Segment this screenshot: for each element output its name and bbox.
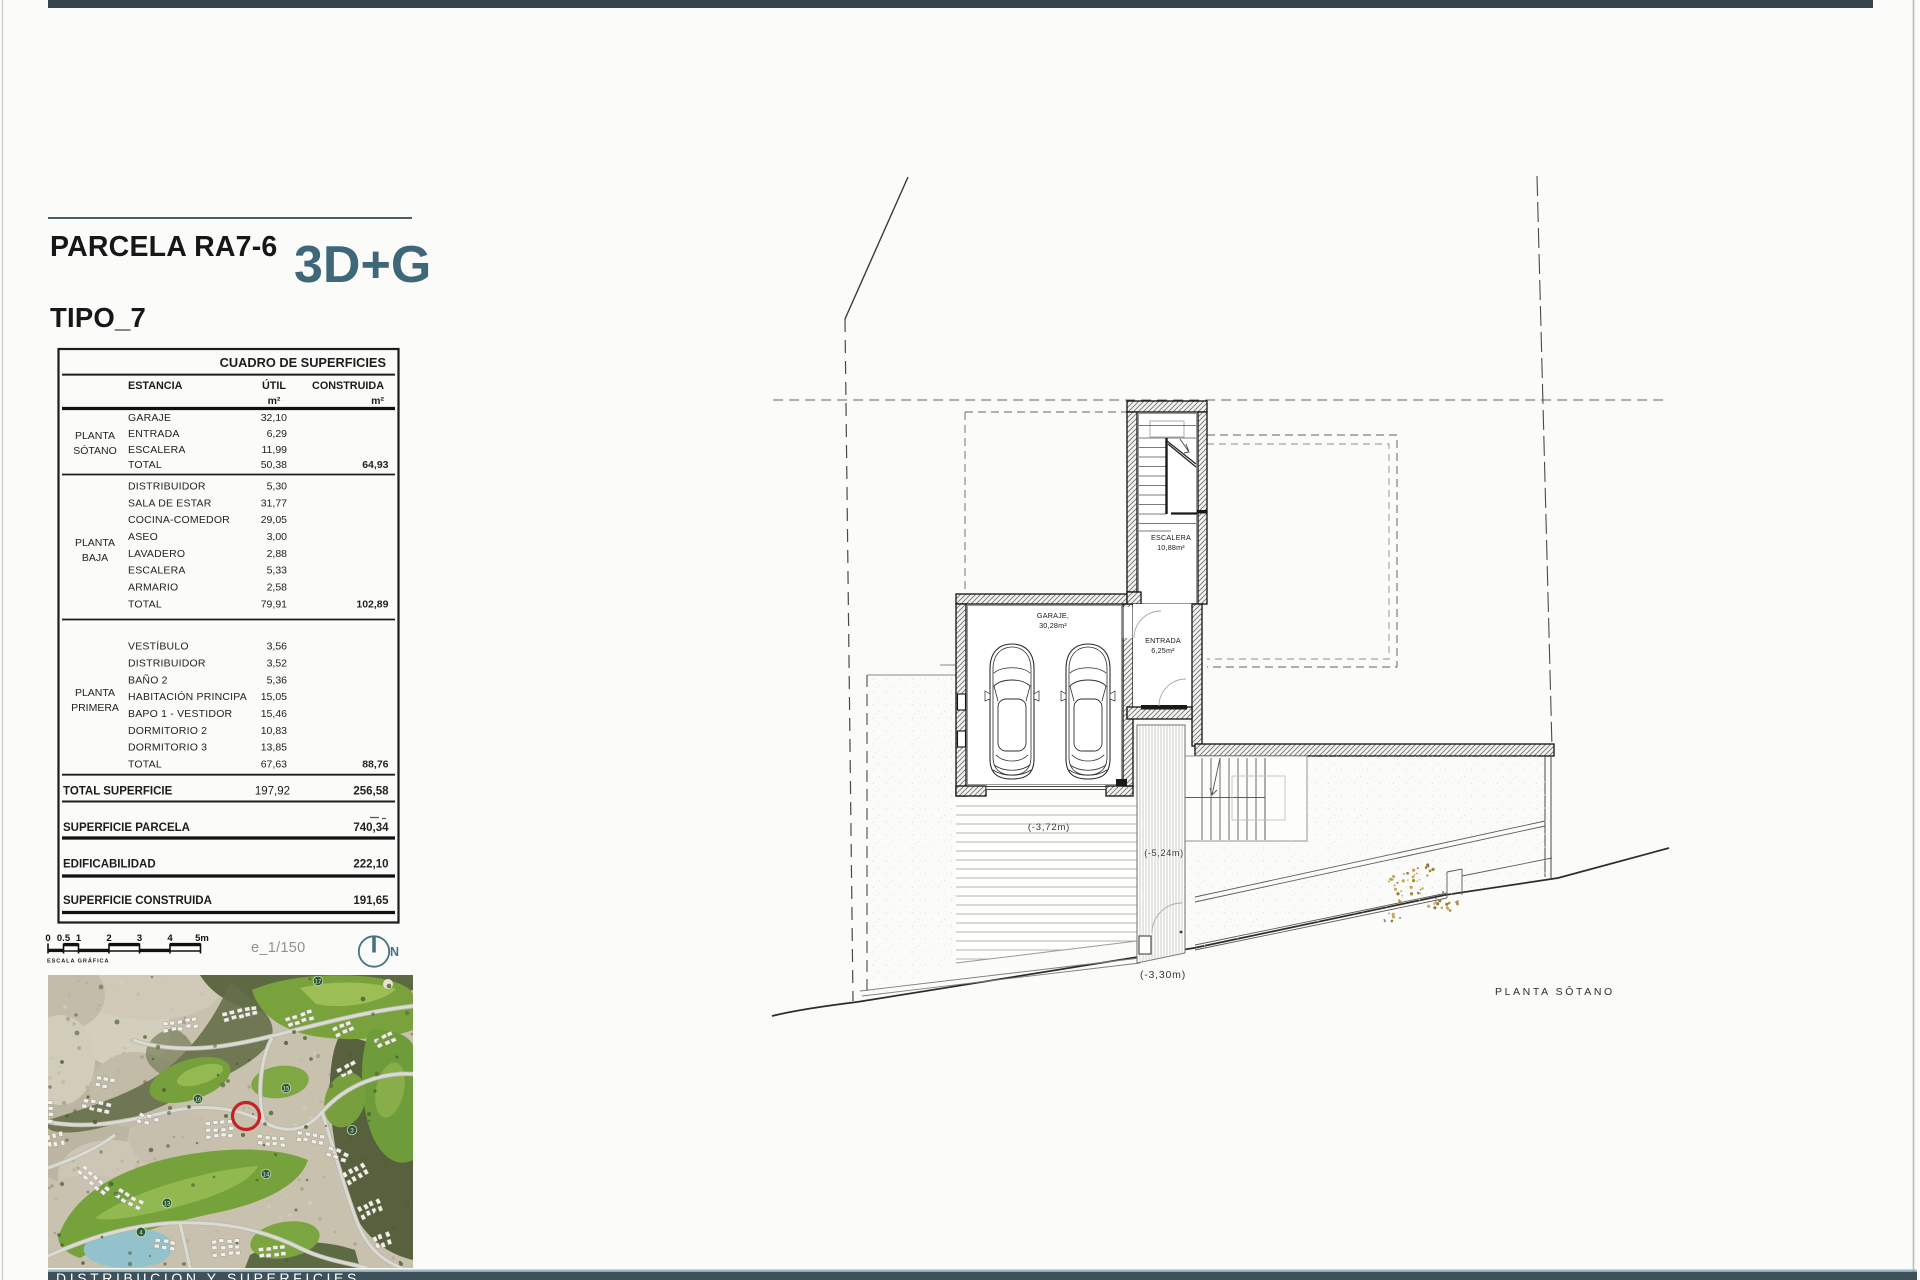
svg-text:31,77: 31,77 — [261, 497, 287, 509]
svg-text:5,33: 5,33 — [267, 565, 288, 577]
svg-text:SUPERFICIE PARCELA: SUPERFICIE PARCELA — [63, 822, 190, 834]
svg-text:64,93: 64,93 — [362, 459, 388, 471]
svg-text:ARMARIO: ARMARIO — [128, 582, 178, 594]
svg-text:2,58: 2,58 — [267, 582, 288, 594]
svg-text:ESTANCIA: ESTANCIA — [128, 380, 183, 392]
svg-text:BAJA: BAJA — [82, 552, 108, 564]
svg-text:DORMITORIO 2: DORMITORIO 2 — [128, 725, 207, 737]
svg-text:SUPERFICIE CONSTRUIDA: SUPERFICIE CONSTRUIDA — [63, 895, 212, 907]
svg-text:m²: m² — [371, 395, 384, 407]
svg-text:191,65: 191,65 — [353, 895, 389, 907]
svg-text:79,91: 79,91 — [261, 599, 287, 611]
svg-text:50,38: 50,38 — [261, 459, 287, 471]
svg-text:4: 4 — [167, 933, 173, 944]
svg-text:256,58: 256,58 — [353, 786, 389, 798]
svg-text:197,92: 197,92 — [255, 786, 290, 798]
svg-text:CUADRO DE SUPERFICIES: CUADRO DE SUPERFICIES — [220, 355, 387, 370]
svg-text:88,76: 88,76 — [362, 759, 388, 771]
svg-text:TOTAL: TOTAL — [128, 459, 162, 471]
svg-text:PLANTA: PLANTA — [75, 687, 115, 699]
svg-text:ESCALERA: ESCALERA — [1151, 533, 1191, 542]
svg-text:ENTRADA: ENTRADA — [128, 428, 180, 440]
svg-text:1: 1 — [76, 933, 82, 944]
svg-text:BAPO 1 - VESTIDOR: BAPO 1 - VESTIDOR — [128, 708, 233, 720]
svg-text:3D+G: 3D+G — [294, 236, 431, 294]
svg-text:2,88: 2,88 — [267, 548, 288, 560]
svg-text:m²: m² — [268, 395, 281, 407]
svg-text:102,89: 102,89 — [356, 599, 388, 611]
svg-text:5m: 5m — [195, 933, 209, 944]
svg-text:0.5: 0.5 — [57, 933, 71, 944]
svg-text:ENTRADA: ENTRADA — [1145, 636, 1181, 645]
svg-text:3,00: 3,00 — [267, 531, 288, 543]
svg-text:PLANTA: PLANTA — [75, 537, 115, 549]
svg-text:6,25m²: 6,25m² — [1151, 646, 1175, 655]
svg-text:15,05: 15,05 — [261, 691, 287, 703]
svg-text:PRIMERA: PRIMERA — [71, 702, 119, 714]
svg-text:GARAJE: GARAJE — [128, 412, 171, 424]
svg-text:CONSTRUIDA: CONSTRUIDA — [312, 380, 384, 392]
svg-text:EDIFICABILIDAD: EDIFICABILIDAD — [63, 859, 156, 871]
svg-text:(-5,24m): (-5,24m) — [1144, 848, 1184, 858]
svg-text:740,34: 740,34 — [353, 822, 389, 834]
svg-text:29,05: 29,05 — [261, 514, 287, 526]
svg-text:5,36: 5,36 — [267, 674, 288, 686]
svg-text:LAVADERO: LAVADERO — [128, 548, 185, 560]
svg-text:10,83: 10,83 — [261, 725, 287, 737]
svg-text:e_1/150: e_1/150 — [251, 940, 306, 956]
svg-text:DISTRIBUIDOR: DISTRIBUIDOR — [128, 657, 206, 669]
svg-text:67,63: 67,63 — [261, 759, 287, 771]
svg-text:16: 16 — [195, 1097, 202, 1103]
svg-text:ESCALERA: ESCALERA — [128, 565, 186, 577]
svg-text:DISTRIBUIDOR: DISTRIBUIDOR — [128, 481, 206, 493]
svg-text:TOTAL: TOTAL — [128, 599, 162, 611]
svg-text:BAÑO 2: BAÑO 2 — [128, 673, 168, 686]
svg-text:SALA DE ESTAR: SALA DE ESTAR — [128, 497, 212, 509]
svg-text:ASEO: ASEO — [128, 531, 158, 543]
svg-text:GARAJE,: GARAJE, — [1037, 611, 1069, 620]
svg-text:(-3,72m): (-3,72m) — [1028, 822, 1070, 833]
svg-text:3,52: 3,52 — [267, 657, 288, 669]
svg-text:PLANTA: PLANTA — [75, 430, 115, 442]
svg-text:15,46: 15,46 — [261, 708, 287, 720]
svg-text:ESCALERA: ESCALERA — [128, 444, 186, 456]
svg-text:ESCALA GRÁFICA: ESCALA GRÁFICA — [47, 958, 109, 965]
svg-text:3: 3 — [137, 933, 142, 944]
svg-text:6,29: 6,29 — [267, 428, 288, 440]
svg-text:DISTRIBUCION Y SUPERFICIES: DISTRIBUCION Y SUPERFICIES — [56, 1270, 360, 1280]
svg-text:222,10: 222,10 — [353, 859, 388, 871]
svg-text:13: 13 — [164, 1201, 171, 1207]
svg-text:COCINA-COMEDOR: COCINA-COMEDOR — [128, 514, 230, 526]
svg-text:10,88m²: 10,88m² — [1157, 543, 1185, 552]
svg-text:11,99: 11,99 — [262, 444, 288, 456]
svg-text:PARCELA RA7-6: PARCELA RA7-6 — [50, 231, 277, 263]
svg-text:PLANTA SÔTANO: PLANTA SÔTANO — [1495, 985, 1615, 998]
svg-text:14: 14 — [263, 1172, 270, 1178]
svg-text:13,85: 13,85 — [261, 742, 287, 754]
svg-text:ÚTIL: ÚTIL — [262, 379, 286, 392]
svg-text:17: 17 — [315, 979, 322, 985]
svg-text:SÓTANO: SÓTANO — [73, 444, 117, 457]
svg-text:TOTAL SUPERFICIE: TOTAL SUPERFICIE — [63, 786, 173, 798]
svg-text:2: 2 — [106, 933, 111, 944]
svg-text:(-3,30m): (-3,30m) — [1140, 969, 1186, 981]
svg-text:TIPO_7: TIPO_7 — [50, 302, 146, 333]
svg-text:30,28m²: 30,28m² — [1039, 621, 1067, 630]
svg-text:15: 15 — [283, 1086, 290, 1092]
svg-text:DORMITORIO 3: DORMITORIO 3 — [128, 742, 207, 754]
svg-text:VESTÍBULO: VESTÍBULO — [128, 640, 189, 653]
svg-text:TOTAL: TOTAL — [128, 759, 162, 771]
svg-text:3,56: 3,56 — [267, 641, 288, 653]
svg-text:HABITACIÓN PRINCIPA: HABITACIÓN PRINCIPA — [128, 690, 247, 703]
svg-text:5,30: 5,30 — [267, 481, 288, 493]
svg-text:N: N — [390, 945, 399, 959]
svg-text:32,10: 32,10 — [261, 412, 287, 424]
svg-text:0: 0 — [45, 933, 50, 944]
